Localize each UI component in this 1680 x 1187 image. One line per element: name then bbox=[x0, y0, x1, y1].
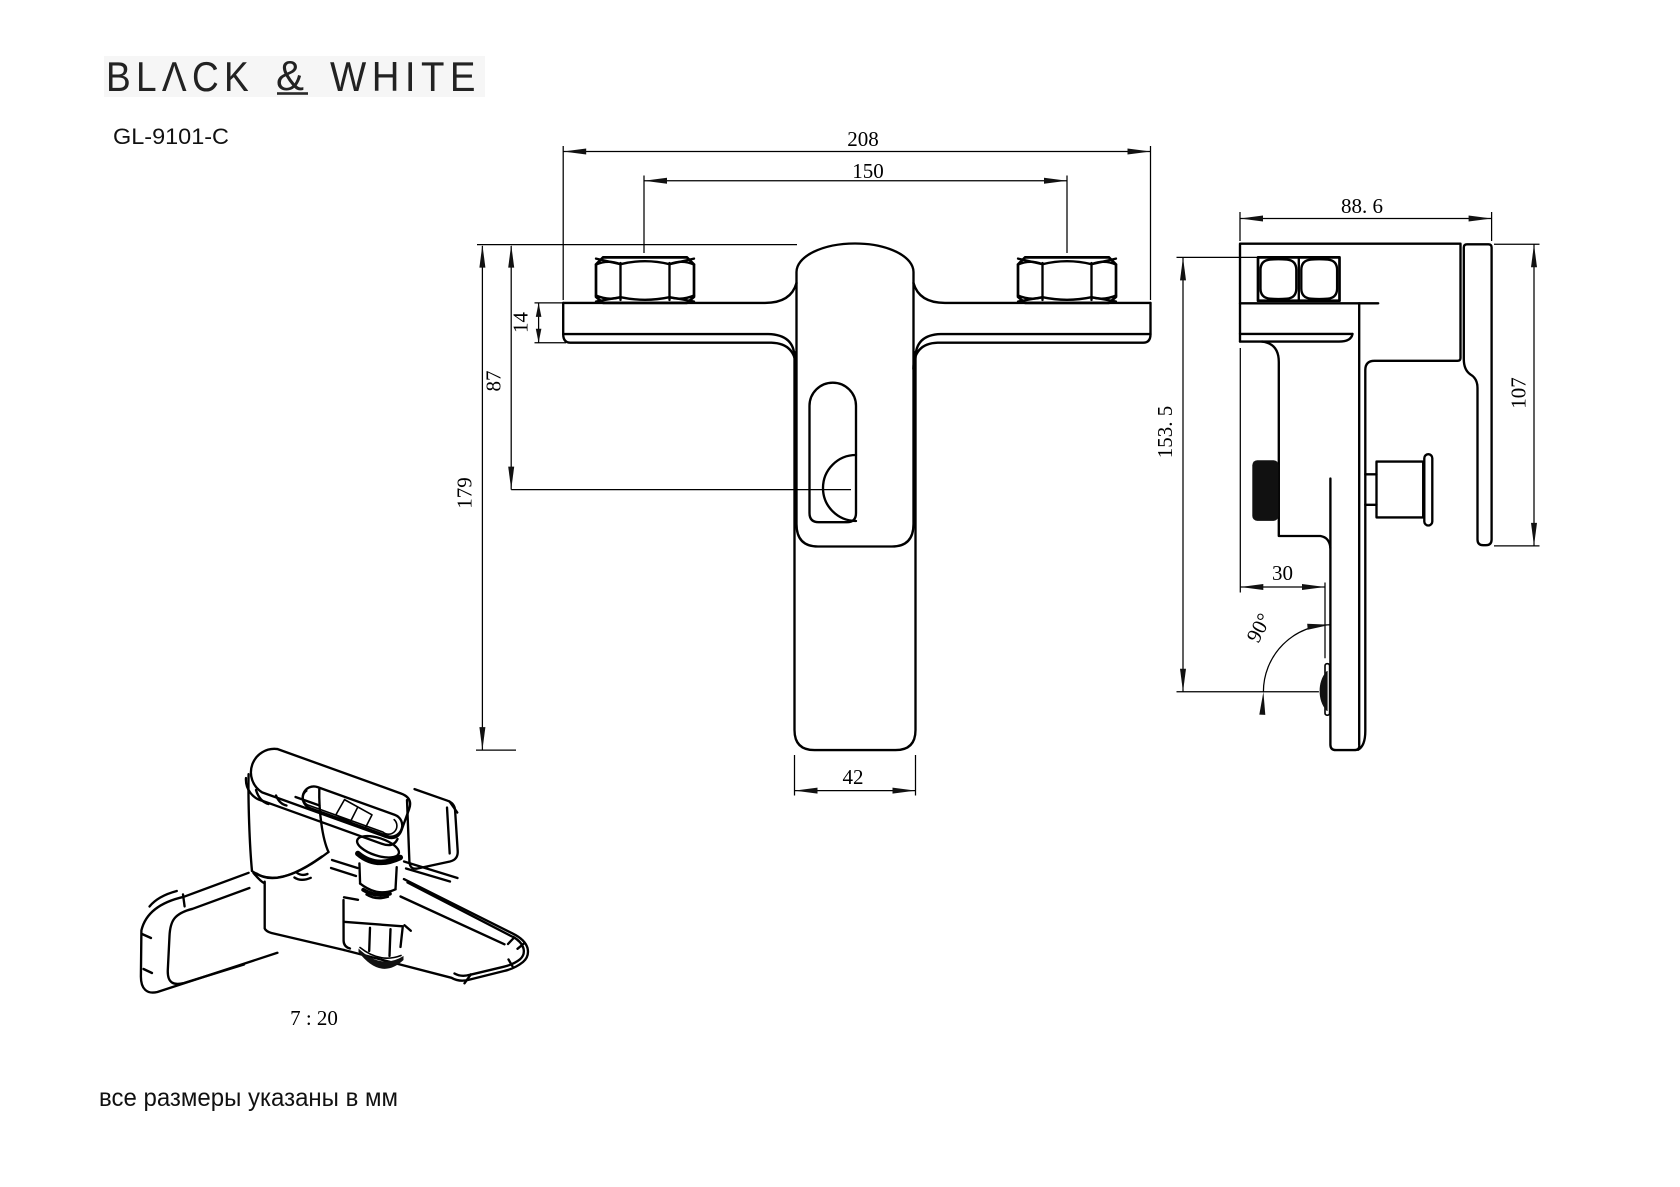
svg-text:107: 107 bbox=[1507, 377, 1531, 409]
svg-text:BLΛCK: BLΛCK bbox=[106, 53, 254, 100]
svg-text:42: 42 bbox=[843, 765, 864, 789]
svg-text:88. 6: 88. 6 bbox=[1341, 194, 1383, 218]
svg-text:153. 5: 153. 5 bbox=[1153, 406, 1177, 459]
svg-text:208: 208 bbox=[847, 127, 879, 151]
svg-text:87: 87 bbox=[482, 371, 506, 392]
svg-text:GL-9101-C: GL-9101-C bbox=[113, 124, 229, 149]
svg-text:WHITE: WHITE bbox=[330, 53, 481, 100]
svg-text:90°: 90° bbox=[1241, 609, 1276, 646]
svg-text:14: 14 bbox=[509, 312, 533, 334]
svg-text:все размеры указаны в мм: все размеры указаны в мм bbox=[99, 1084, 398, 1112]
svg-text:&: & bbox=[276, 52, 310, 99]
svg-text:150: 150 bbox=[852, 159, 884, 183]
svg-text:179: 179 bbox=[453, 477, 477, 509]
svg-text:7 : 20: 7 : 20 bbox=[290, 1006, 338, 1030]
svg-text:30: 30 bbox=[1272, 561, 1293, 585]
